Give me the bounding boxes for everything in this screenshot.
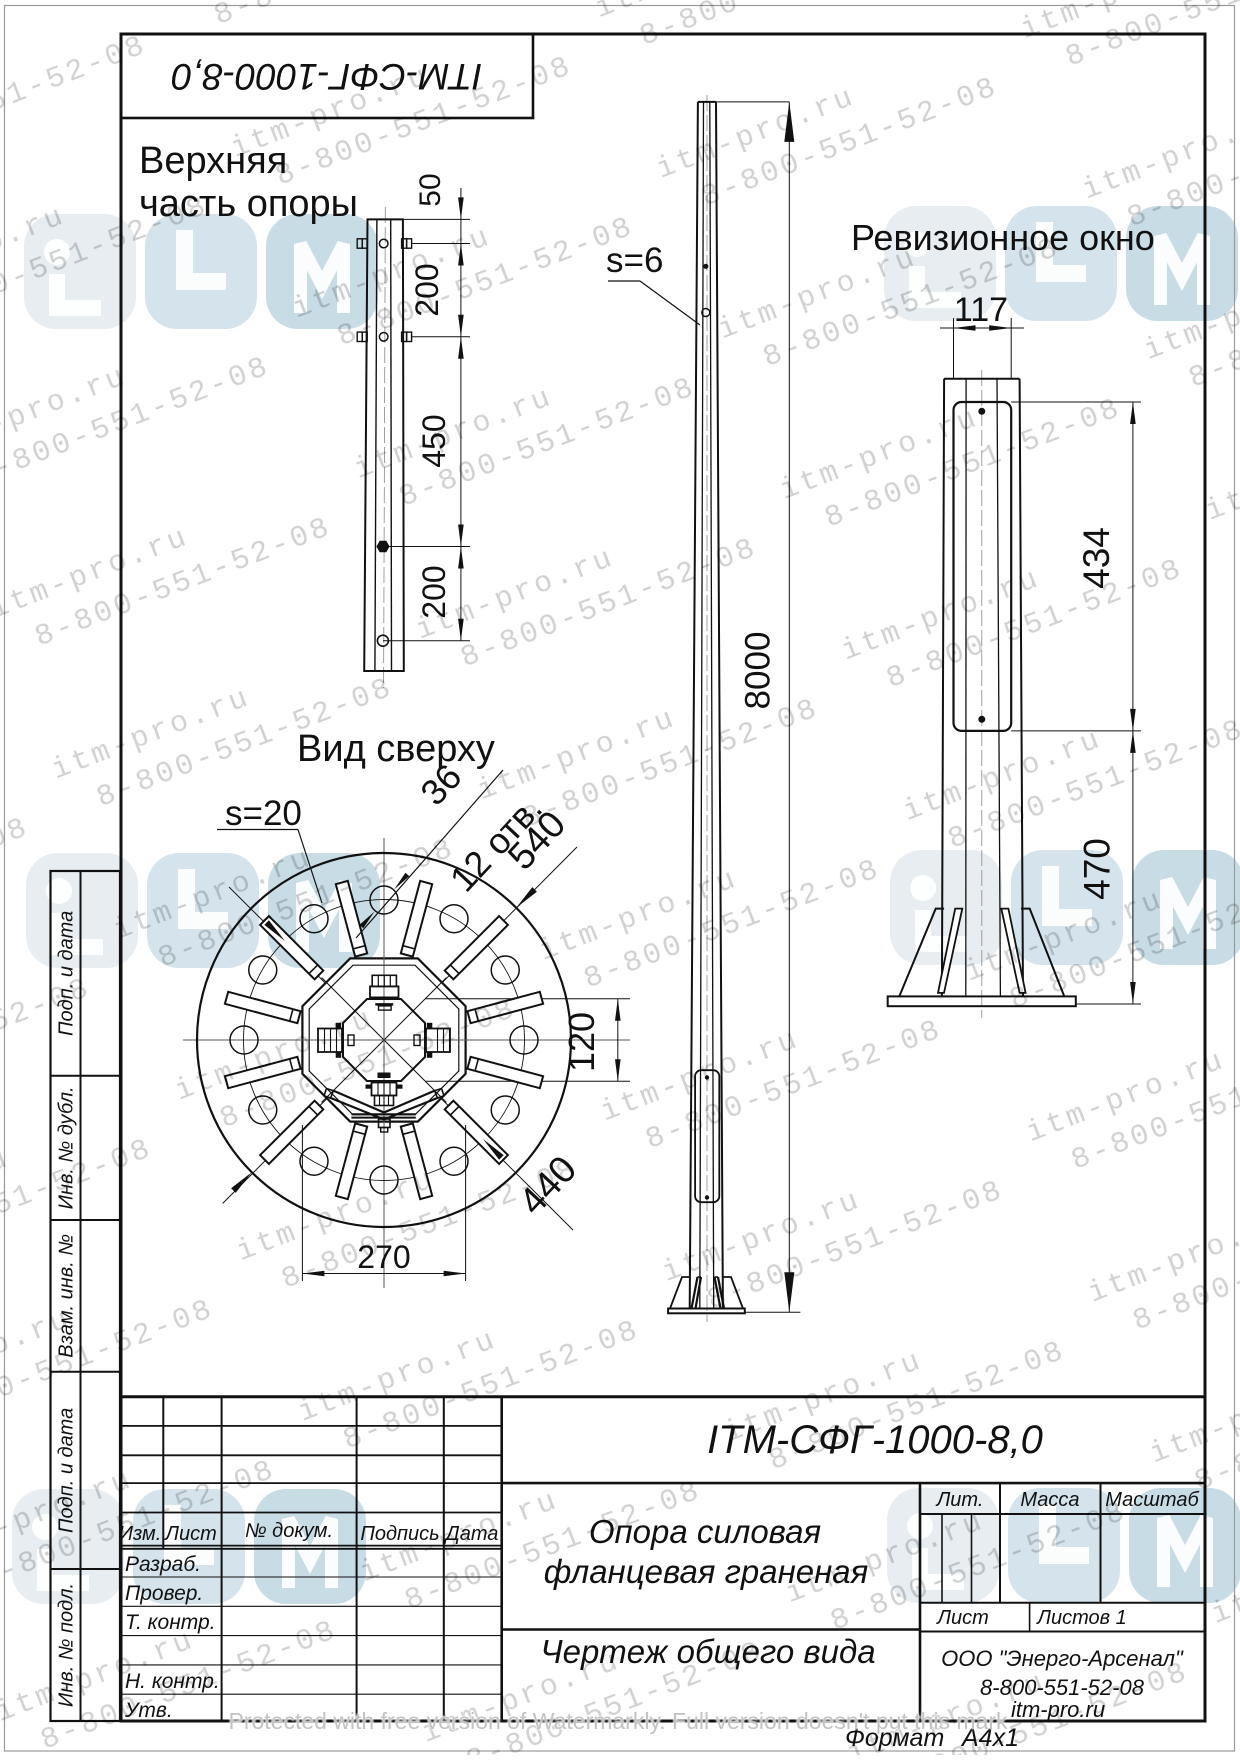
svg-text:Protected with free version of: Protected with free version of Watermark… [228, 1708, 1008, 1734]
